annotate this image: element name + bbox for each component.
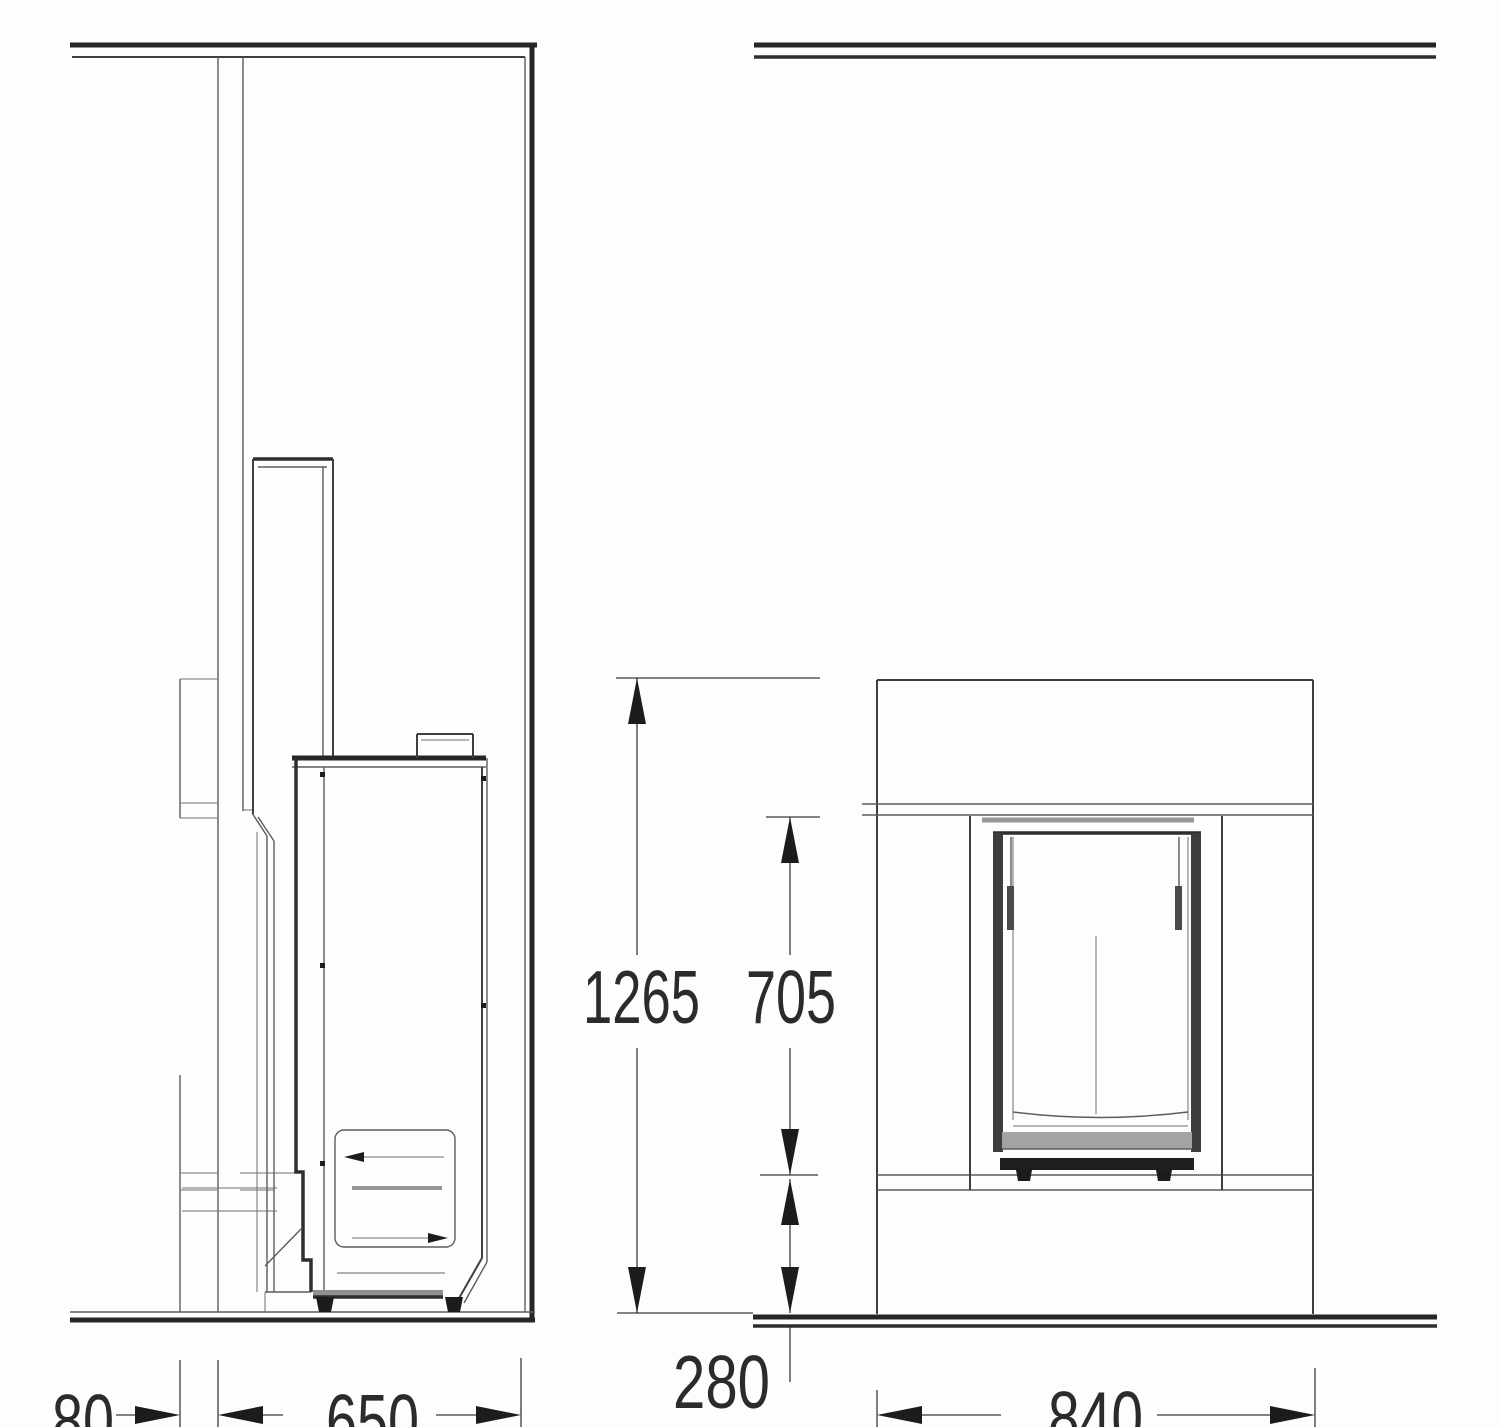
- door-air-arrow: [428, 1233, 448, 1243]
- dim-arrow-280-up: [781, 1179, 799, 1225]
- side-section-view: [70, 45, 537, 1320]
- dim-arrow-280-down: [781, 1267, 799, 1313]
- hinge-dot-4: [481, 776, 486, 781]
- door-hook-left: [1007, 886, 1014, 930]
- frame-right-bar: [1191, 833, 1201, 1152]
- insert-foot-right: [1156, 1170, 1172, 1181]
- dim-label-280: 280: [673, 1340, 770, 1424]
- glass-bottom-curve: [1013, 1112, 1188, 1118]
- dim-arrow-80: [135, 1406, 180, 1424]
- dim-arrow-650-right: [476, 1406, 521, 1424]
- dim-label-705: 705: [746, 955, 836, 1039]
- front-diagonal: [265, 1229, 301, 1266]
- frame-left-bar: [993, 833, 1003, 1152]
- column-chamfer-2: [258, 817, 274, 841]
- drawing-canvas: 1265 705 280 80 650 840: [0, 0, 1500, 1427]
- insert-foot-left: [1016, 1170, 1032, 1181]
- dim-label-80: 80: [52, 1379, 114, 1427]
- hinge-dot-2: [320, 963, 325, 968]
- hinge-dot-3: [320, 1161, 325, 1166]
- front-elevation-view: [753, 45, 1437, 1326]
- door-baffle-arrow: [344, 1152, 364, 1162]
- stove-front-profile: [296, 758, 311, 1292]
- dim-arrow-840-left: [877, 1406, 922, 1424]
- stove-foot-front: [316, 1297, 334, 1312]
- dim-arrow-650-left: [218, 1406, 263, 1424]
- dim-arrow-1265-up: [628, 678, 646, 724]
- hearth-dark-bar: [1000, 1158, 1194, 1170]
- stove-foot-rear: [445, 1297, 463, 1312]
- dim-label-1265: 1265: [583, 955, 700, 1039]
- dim-arrow-705-up: [781, 817, 799, 863]
- hearth-gray-bar: [1002, 1132, 1192, 1149]
- door-hook-right: [1175, 886, 1182, 930]
- column-chamfer-1: [252, 813, 267, 836]
- dim-arrow-840-right: [1270, 1406, 1315, 1424]
- dim-label-650: 650: [326, 1379, 419, 1427]
- hinge-dot-5: [481, 1003, 486, 1008]
- drawing-page: 1265 705 280 80 650 840: [0, 0, 1500, 1427]
- hinge-dot-1: [320, 772, 325, 777]
- dim-arrow-1265-down: [628, 1267, 646, 1313]
- base-gray-bar: [313, 1290, 443, 1296]
- dim-label-840: 840: [1048, 1376, 1143, 1427]
- dim-arrow-705-down: [781, 1129, 799, 1175]
